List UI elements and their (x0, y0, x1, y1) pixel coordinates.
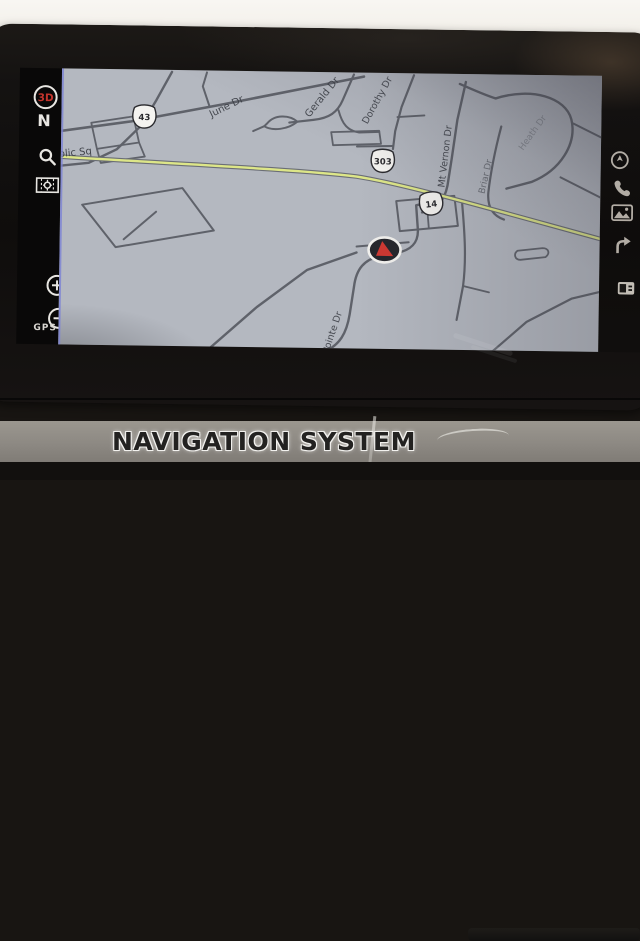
dashboard-photo: 3D N (0, 0, 640, 480)
route-shield: 43 (133, 105, 157, 128)
north-up-button[interactable]: N (37, 111, 51, 130)
map-viewport[interactable]: 4330314 Public SqJune DrGerald DrDorothy… (58, 68, 602, 352)
lower-dashboard (0, 462, 640, 480)
road-path (253, 126, 264, 131)
photo-icon (611, 204, 633, 221)
compass-button[interactable] (610, 150, 630, 170)
street-label: Pointe Dr (321, 310, 346, 352)
route-shield-number: 14 (425, 199, 438, 210)
phone-button[interactable] (611, 178, 631, 198)
street-label: June Dr (207, 94, 247, 121)
road-path (458, 84, 573, 190)
svg-text:3D: 3D (38, 92, 54, 104)
route-arrow-icon (614, 234, 634, 254)
street-label: Briar Dr (478, 158, 496, 195)
road-path (124, 211, 156, 239)
map-display-settings-button[interactable] (35, 176, 59, 194)
street-label: Heath Dr (517, 114, 549, 153)
road-path (203, 72, 210, 106)
road-path (573, 124, 602, 140)
road-path (397, 115, 424, 117)
view-3d-button[interactable]: 3D (32, 84, 58, 110)
shortcut-bar-right (598, 76, 640, 353)
route-line (58, 156, 602, 241)
trim-label-bar: NAVIGATION SYSTEM (0, 421, 640, 462)
search-icon (38, 147, 58, 167)
photo-button[interactable] (611, 204, 633, 221)
road-path (560, 177, 602, 200)
route-shield: 303 (371, 149, 395, 172)
infotainment-unit: 3D N (0, 23, 640, 410)
display-button[interactable] (617, 280, 635, 294)
map[interactable]: 4330314 Public SqJune DrGerald DrDorothy… (58, 68, 602, 352)
route-shield-number: 303 (374, 157, 392, 167)
north-indicator-label: N (37, 111, 51, 130)
street-label: Gerald Dr (303, 75, 342, 120)
map-display-settings-icon (35, 176, 59, 194)
dashboard-seam (0, 398, 640, 400)
vehicle-position-marker (368, 237, 400, 262)
gps-status-label: GPS (33, 323, 57, 333)
road-path (393, 75, 414, 149)
map-toolbar-left: 3D N (16, 68, 62, 345)
display-icon (617, 281, 635, 295)
air-vent (468, 928, 640, 941)
phone-icon (611, 178, 631, 198)
view-3d-icon: 3D (32, 84, 58, 110)
road-path (357, 146, 393, 148)
route-casing (58, 156, 602, 241)
compass-icon (610, 150, 630, 170)
road-path (463, 286, 489, 292)
route-shield-number: 43 (138, 113, 150, 123)
route-button[interactable] (614, 234, 634, 254)
street-label: Dorothy Dr (360, 75, 395, 126)
road-path (515, 248, 548, 260)
road-path (326, 200, 432, 352)
road-path (490, 289, 602, 352)
search-button[interactable] (38, 147, 58, 167)
